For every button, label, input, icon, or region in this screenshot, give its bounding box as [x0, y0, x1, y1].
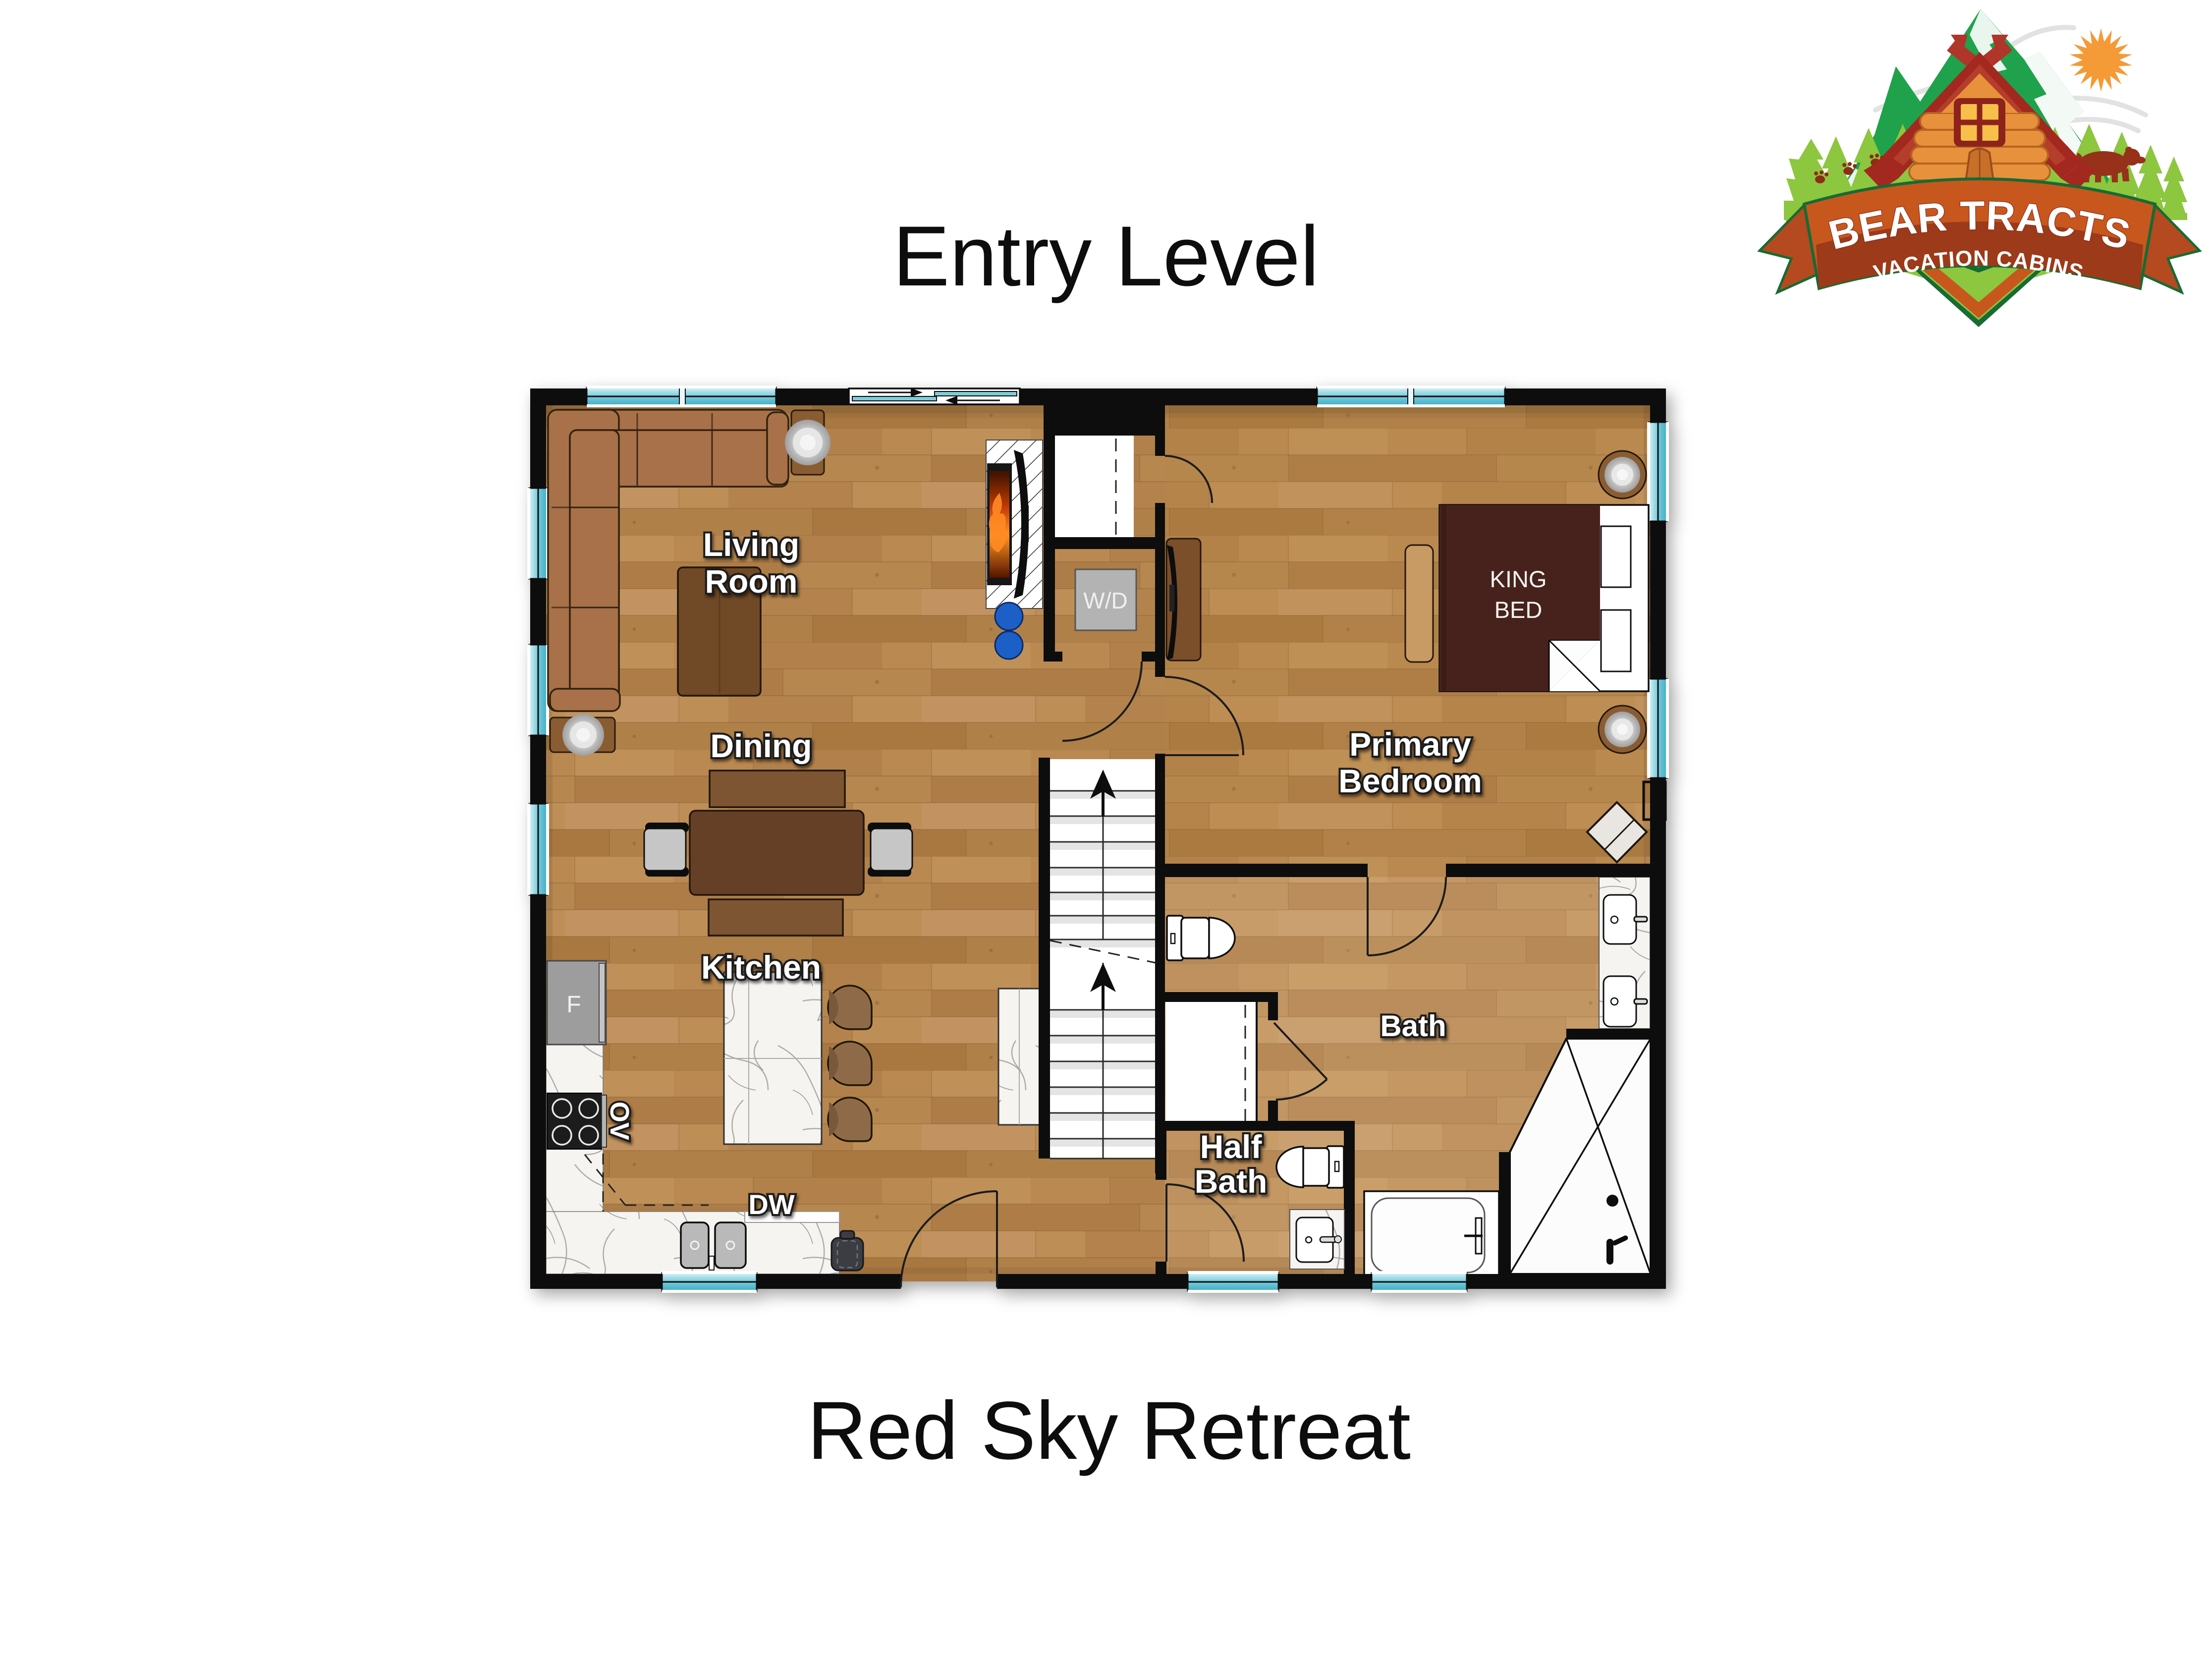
svg-text:Half: Half	[1200, 1128, 1263, 1165]
svg-text:KING: KING	[1490, 566, 1547, 592]
svg-text:Living: Living	[703, 526, 799, 563]
svg-text:OV: OV	[605, 1102, 634, 1140]
svg-text:Bath: Bath	[1195, 1163, 1268, 1200]
svg-text:Primary: Primary	[1349, 726, 1471, 763]
svg-text:BED: BED	[1494, 597, 1543, 623]
svg-text:Kitchen: Kitchen	[701, 949, 821, 986]
svg-text:Red Sky Retreat: Red Sky Retreat	[807, 1385, 1411, 1477]
svg-text:Entry Level: Entry Level	[893, 209, 1319, 304]
svg-text:Bedroom: Bedroom	[1338, 763, 1482, 799]
svg-text:DW: DW	[748, 1189, 794, 1220]
svg-text:Dining: Dining	[710, 727, 812, 764]
svg-text:W/D: W/D	[1083, 588, 1127, 613]
svg-text:F: F	[566, 992, 581, 1018]
svg-text:Bath: Bath	[1380, 1009, 1446, 1043]
svg-text:Room: Room	[705, 563, 798, 600]
